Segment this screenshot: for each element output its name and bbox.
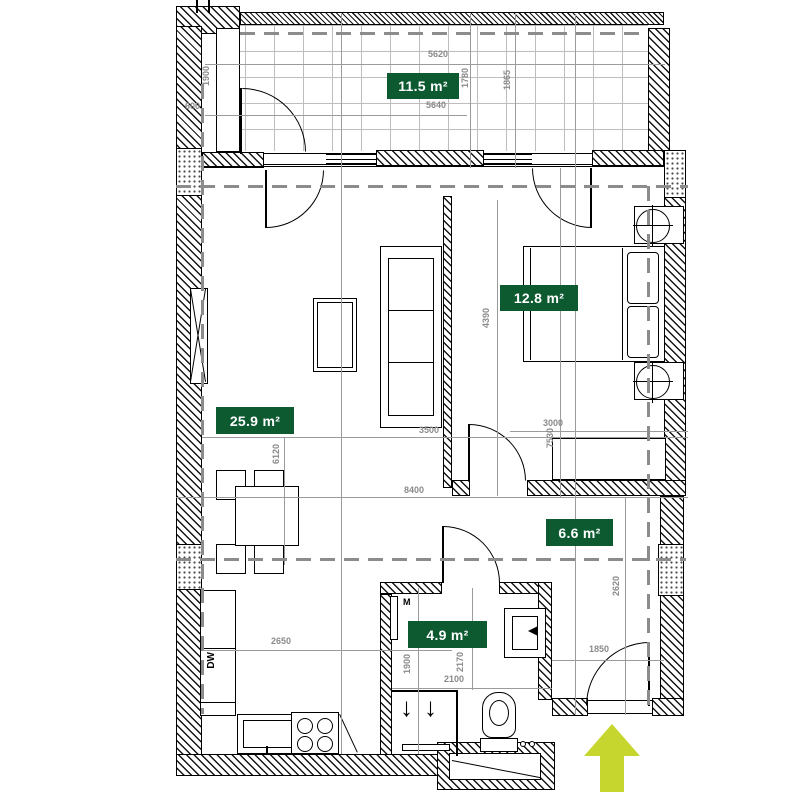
window-bedroom: [484, 153, 532, 165]
bed-head-line: [622, 248, 623, 360]
kitchen-sink-basin: [243, 720, 293, 748]
shower-arrow-icon: ↓: [400, 694, 413, 720]
washer-label: M: [403, 598, 411, 607]
dining-table: [235, 486, 299, 546]
door-swing-living-balcony: [266, 170, 324, 228]
section-line: [201, 84, 204, 714]
wall-left: [176, 26, 202, 756]
roof-line-b: [208, 0, 210, 13]
pillow: [627, 306, 659, 358]
tv-stand-inner: [317, 302, 353, 368]
room-label-living: 25.9 m²: [216, 407, 294, 434]
dim-text: 1900: [403, 654, 412, 674]
wall-entry-right: [652, 698, 684, 716]
wall-pier-concrete-left-mid: [176, 148, 202, 196]
lamp-cross-h: [633, 381, 673, 382]
wall-pier-concrete-right-low: [658, 544, 684, 596]
pillow: [627, 252, 659, 304]
kitchen-counter-divider-a: [200, 648, 236, 649]
sofa-cushion-line-b: [388, 362, 434, 363]
dim-line: [510, 431, 688, 432]
balcony-door-threshold-bedroom: [532, 153, 592, 165]
dim-line: [205, 64, 665, 65]
dim-line: [202, 650, 452, 651]
dim-text: 1780: [461, 68, 470, 88]
section-line: [176, 558, 686, 561]
grid-line: [284, 437, 285, 565]
wall-bedroom-hall-b: [527, 480, 686, 496]
dim-text: 3000: [543, 419, 563, 428]
lamp-cross-v: [652, 205, 653, 247]
grid-line: [497, 200, 498, 496]
lamp-cross-v: [652, 361, 653, 403]
wall-right-upper: [664, 150, 686, 496]
wall-living-bedroom-divider: [443, 196, 452, 488]
burner: [297, 736, 313, 752]
wall-window-pier-b: [376, 150, 484, 166]
door-swing-bedroom-balcony: [532, 168, 592, 228]
grid-line: [625, 497, 626, 715]
dishwasher-label: DW: [207, 652, 217, 669]
toilet-valve: [529, 741, 535, 747]
section-line: [240, 32, 648, 35]
shower-arrow-icon: ↓: [424, 694, 437, 720]
dim-line: [392, 688, 552, 689]
dim-text: 1900: [202, 66, 211, 86]
grid-line: [470, 14, 471, 168]
burner: [317, 736, 333, 752]
room-label-balcony: 11.5 m²: [387, 73, 459, 99]
shower-drain: [402, 744, 450, 751]
entrance-arrow-shaft: [600, 756, 624, 792]
door-swing-bathroom: [443, 526, 500, 583]
kitchen-counter-divider-b: [200, 702, 236, 703]
dim-text: 1865: [503, 70, 512, 90]
wall-pier-concrete-right-top: [664, 150, 686, 198]
wall-balcony-left: [216, 28, 240, 152]
grid-line: [418, 588, 419, 754]
dim-text: 2650: [271, 637, 291, 646]
section-line: [176, 185, 688, 188]
dim-line: [202, 437, 688, 438]
balcony-railing: [240, 12, 664, 25]
grid-line: [575, 14, 576, 714]
section-line: [647, 186, 650, 714]
toilet-tank: [480, 738, 518, 752]
wall-bath-top-a: [380, 582, 442, 594]
sofa-cushion-line-a: [388, 310, 434, 311]
rooms-top-edge-line: [202, 166, 664, 167]
nightstand-lamp: [636, 365, 670, 399]
wall-balcony-right: [648, 28, 670, 152]
dim-text: 2620: [612, 576, 621, 596]
burner: [297, 718, 313, 734]
entrance-arrow-icon: [584, 724, 640, 756]
dim-text: 8400: [404, 486, 424, 495]
balcony-door-threshold-living: [264, 153, 326, 165]
wall-window-pier-c: [592, 150, 664, 166]
roof-line-a: [196, 0, 198, 13]
dim-line: [205, 115, 467, 116]
wall-entry-left: [552, 698, 588, 716]
grid-line: [341, 14, 342, 754]
burner: [317, 718, 333, 734]
dim-text: 5640: [426, 101, 446, 110]
wall-hall-right: [660, 496, 684, 716]
nightstand-lamp: [636, 209, 670, 243]
dim-text: 4390: [482, 308, 491, 328]
washbasin-tap-icon: [528, 626, 538, 636]
floor-plan: DW ↓ ↓ M: [0, 0, 800, 800]
dim-line: [176, 497, 688, 498]
room-label-hallway: 6.6 m²: [546, 519, 613, 546]
dim-text: 600: [185, 102, 200, 111]
dim-text: 2170: [456, 652, 465, 672]
grid-line: [515, 14, 516, 168]
wall-pier-concrete-left-low: [176, 544, 202, 590]
dim-text: 6120: [272, 444, 281, 464]
window-living: [326, 153, 376, 165]
dim-text: 2100: [444, 675, 464, 684]
bath-mirror: [390, 596, 398, 640]
wall-bedroom-hall-a: [452, 480, 470, 496]
grid-line: [560, 168, 561, 498]
sofa-seat: [388, 258, 434, 416]
dim-text: 1850: [589, 645, 609, 654]
room-label-bathroom: 4.9 m²: [408, 621, 487, 648]
room-label-bedroom: 12.8 m²: [500, 285, 578, 311]
toilet-seat: [489, 700, 509, 726]
dim-text: 5620: [428, 50, 448, 59]
wall-bottom: [176, 754, 462, 776]
toilet-valve: [520, 741, 526, 747]
lamp-cross-h: [633, 225, 673, 226]
kitchen-tap: [266, 746, 268, 754]
dim-text: 3500: [419, 426, 439, 435]
dim-text: 7530: [546, 428, 555, 448]
